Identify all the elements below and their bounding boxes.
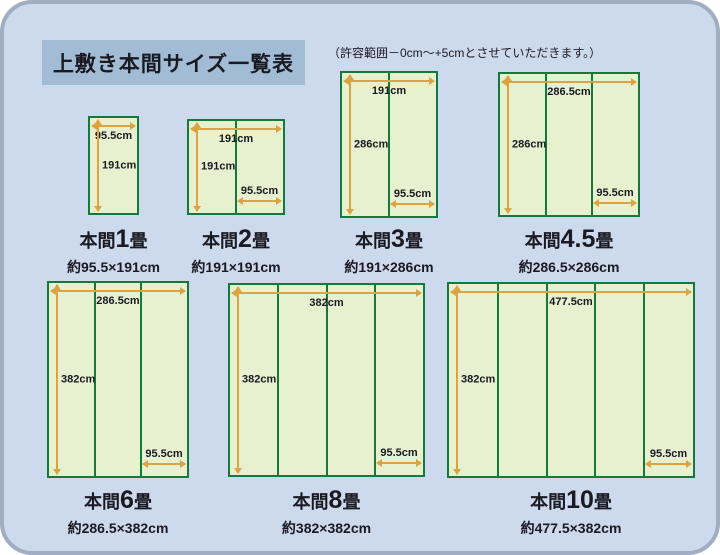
height-arrow — [97, 120, 99, 211]
mat-width-arrow — [377, 462, 421, 464]
height-dimension-label: 382cm — [242, 375, 276, 386]
mat-width-dimension-label: 95.5cm — [375, 448, 423, 459]
mat-count: 8 — [329, 486, 343, 514]
mat-width-arrow — [646, 463, 691, 465]
width-dimension-label: 477.5cm — [449, 297, 693, 308]
mat-width-arrow — [594, 202, 636, 204]
tolerance-note: （許容範囲－0cm～+5cmとさせていただきます。） — [328, 44, 601, 61]
mat-name-prefix: 本間 — [355, 231, 391, 251]
width-arrow — [191, 128, 281, 130]
mat-name-prefix: 本間 — [530, 492, 566, 512]
mat-name-prefix: 本間 — [202, 231, 238, 251]
height-dimension-label: 286cm — [512, 139, 546, 150]
mat-width-dimension-label: 95.5cm — [389, 189, 436, 200]
mat-panel-6jo: 286.5cm382cm95.5cm — [47, 281, 189, 478]
mat-name-label: 本間8畳 — [217, 488, 437, 516]
mat-name-prefix: 本間 — [80, 231, 116, 251]
mat-name-label: 本間6畳 — [8, 488, 228, 516]
mat-panel-2jo: 191cm191cm95.5cm — [187, 119, 285, 215]
height-arrow — [196, 123, 198, 211]
mat-count: 10 — [566, 486, 594, 514]
mat-count: 4.5 — [561, 225, 596, 253]
width-arrow — [344, 80, 434, 82]
mat-divider — [546, 284, 548, 476]
mat-caption-4.5jo: 本間4.5畳約286.5×286cm — [459, 227, 679, 277]
mat-name-label: 本間10畳 — [461, 488, 681, 516]
mat-width-arrow — [238, 200, 281, 202]
mat-width-dimension-label: 95.5cm — [592, 188, 638, 199]
width-arrow — [502, 81, 636, 83]
mat-count: 2 — [238, 225, 252, 253]
width-dimension-label: 286.5cm — [500, 87, 638, 98]
mat-name-suffix: 畳 — [594, 492, 612, 512]
width-dimension-label: 191cm — [189, 134, 283, 145]
mat-width-dimension-label: 95.5cm — [141, 449, 187, 460]
height-arrow — [56, 285, 58, 474]
mat-divider — [140, 283, 142, 476]
mat-count: 6 — [120, 486, 134, 514]
mat-divider — [594, 284, 596, 476]
mat-panel-10jo: 477.5cm382cm95.5cm — [447, 282, 695, 478]
mat-divider — [497, 284, 499, 476]
mat-caption-6jo: 本間6畳約286.5×382cm — [8, 488, 228, 538]
mat-divider — [326, 285, 328, 475]
page-title: 上敷き本間サイズ一覧表 — [53, 48, 294, 78]
mat-name-suffix: 畳 — [595, 231, 613, 251]
mat-name-prefix: 本間 — [84, 492, 120, 512]
title-box: 上敷き本間サイズ一覧表 — [42, 40, 305, 85]
mat-width-arrow — [391, 203, 434, 205]
mat-name-suffix: 畳 — [342, 492, 360, 512]
mat-divider — [643, 284, 645, 476]
mat-panel-8jo: 382cm382cm95.5cm — [228, 283, 425, 477]
height-arrow — [507, 76, 509, 213]
mat-size-label: 約286.5×286cm — [459, 257, 679, 277]
height-dimension-label: 286cm — [354, 139, 388, 150]
width-dimension-label: 286.5cm — [49, 296, 187, 307]
mat-panel-3jo: 191cm286cm95.5cm — [340, 71, 438, 218]
mat-name-label: 本間4.5畳 — [459, 227, 679, 255]
width-arrow — [51, 290, 185, 292]
mat-width-arrow — [143, 463, 185, 465]
height-arrow — [237, 287, 239, 473]
mat-name-suffix: 畳 — [252, 231, 270, 251]
mat-size-label: 約286.5×382cm — [8, 518, 228, 538]
width-dimension-label: 382cm — [230, 298, 423, 309]
mat-panel-1jo: 95.5cm191cm — [88, 116, 139, 215]
mat-name-prefix: 本間 — [293, 492, 329, 512]
mat-divider — [374, 285, 376, 475]
height-dimension-label: 191cm — [201, 162, 235, 173]
mat-size-label: 約382×382cm — [217, 518, 437, 538]
height-arrow — [456, 286, 458, 474]
mat-divider — [277, 285, 279, 475]
width-arrow — [232, 292, 421, 294]
mat-size-label: 約477.5×382cm — [461, 518, 681, 538]
height-dimension-label: 382cm — [461, 375, 495, 386]
height-arrow — [349, 75, 351, 214]
mat-width-dimension-label: 95.5cm — [236, 186, 283, 197]
mat-width-dimension-label: 95.5cm — [644, 449, 693, 460]
mat-caption-8jo: 本間8畳約382×382cm — [217, 488, 437, 538]
mat-caption-10jo: 本間10畳約477.5×382cm — [461, 488, 681, 538]
height-dimension-label: 191cm — [102, 160, 136, 171]
mat-name-suffix: 畳 — [134, 492, 152, 512]
size-chart-canvas: 上敷き本間サイズ一覧表 （許容範囲－0cm～+5cmとさせていただきます。） 9… — [0, 0, 720, 555]
mat-name-prefix: 本間 — [525, 231, 561, 251]
mat-panel-4.5jo: 286.5cm286cm95.5cm — [498, 72, 640, 217]
mat-name-suffix: 畳 — [405, 231, 423, 251]
mat-count: 3 — [391, 225, 405, 253]
width-arrow — [451, 291, 691, 293]
height-dimension-label: 382cm — [61, 374, 95, 385]
width-dimension-label: 191cm — [342, 86, 436, 97]
